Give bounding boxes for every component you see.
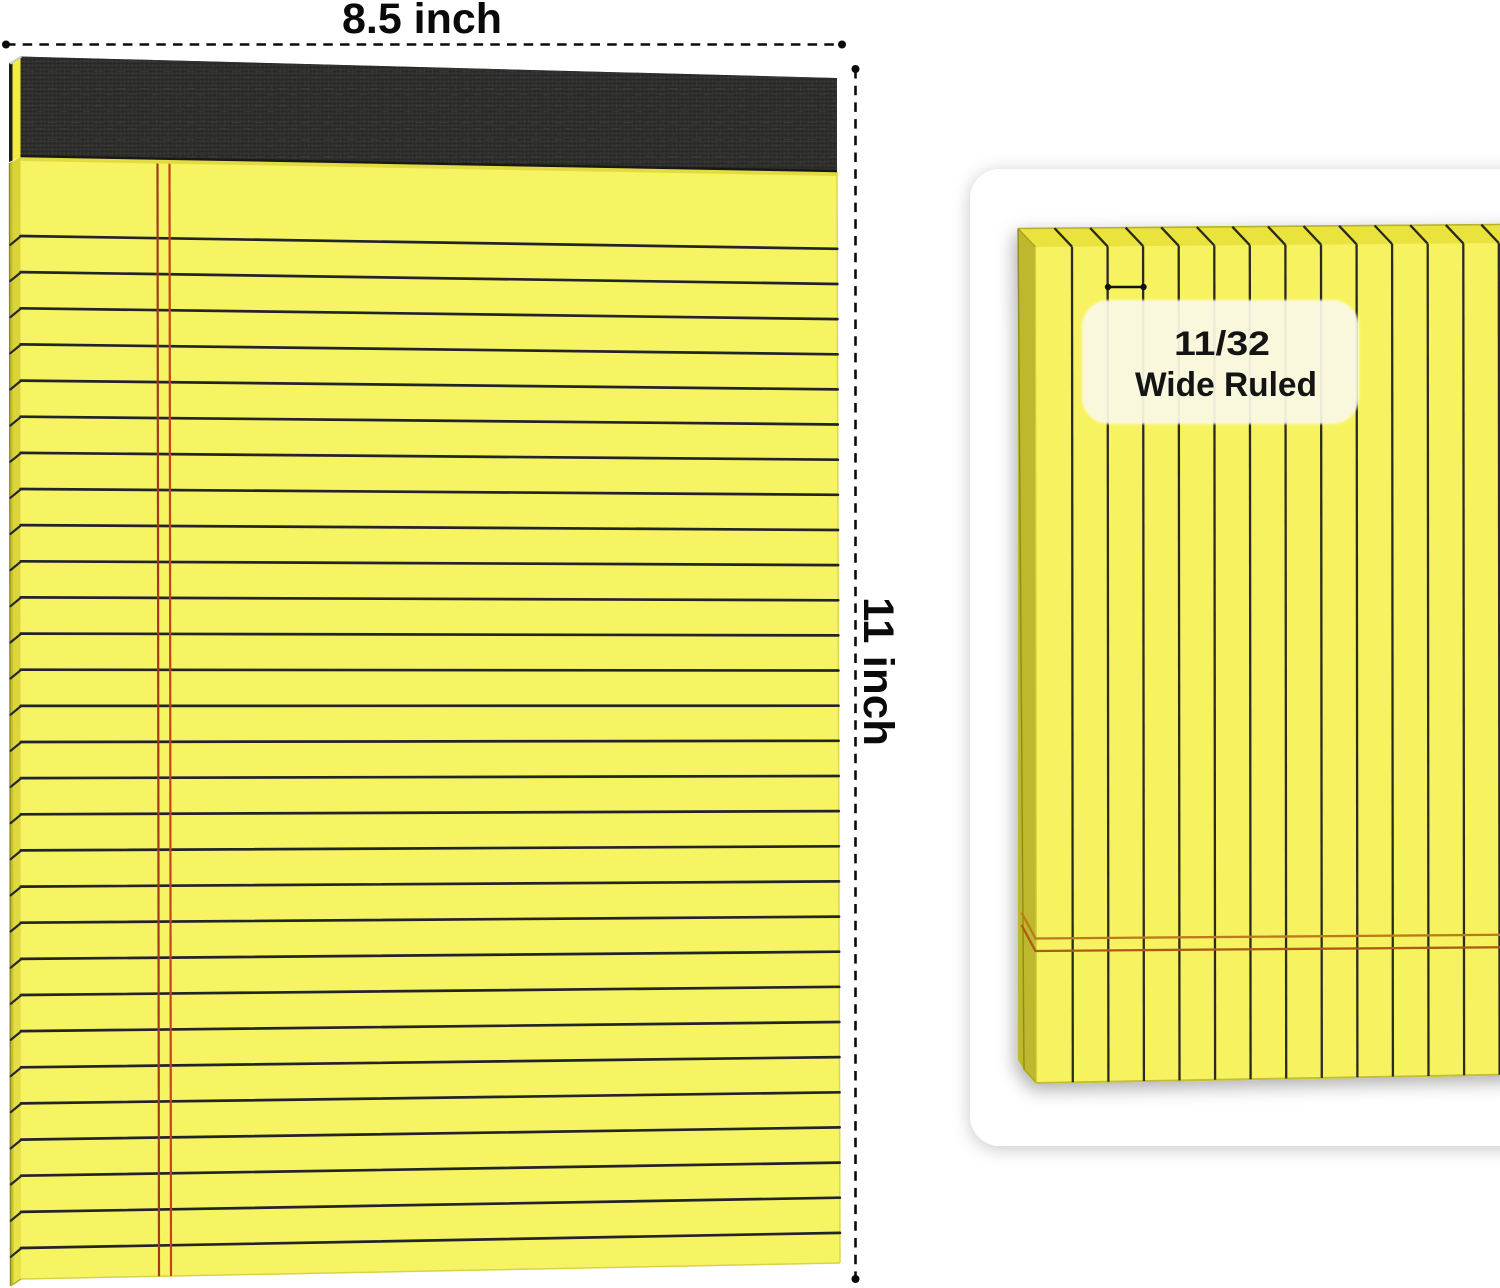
svg-text:11 inch: 11 inch: [854, 597, 902, 746]
svg-text:Wide Ruled: Wide Ruled: [1135, 366, 1317, 404]
svg-text:11/32: 11/32: [1174, 325, 1270, 363]
svg-text:8.5 inch: 8.5 inch: [342, 0, 502, 43]
